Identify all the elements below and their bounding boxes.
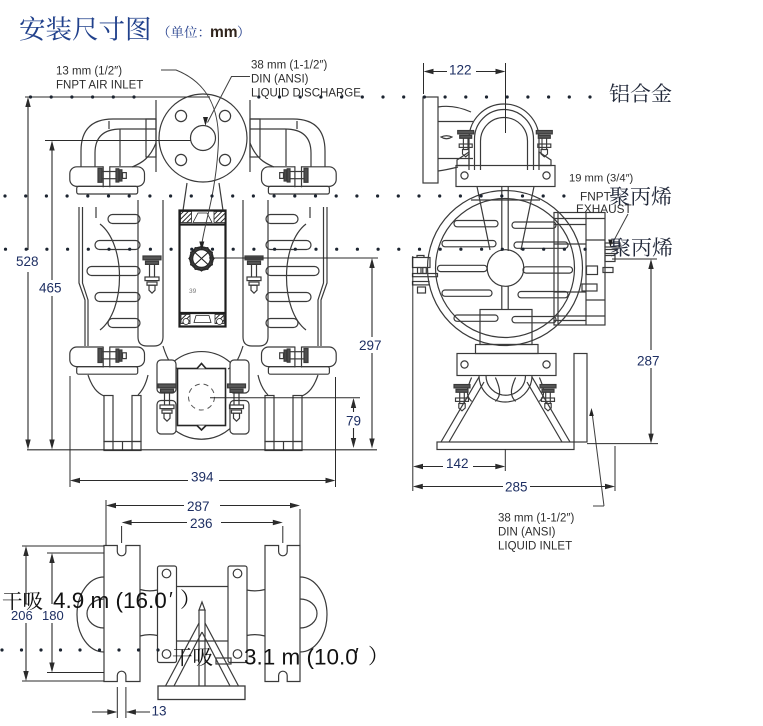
svg-text:3.1 m (10.0: 3.1 m (10.0 [244, 645, 358, 670]
svg-text:394: 394 [191, 470, 214, 485]
svg-text:285: 285 [505, 480, 528, 495]
svg-text:mm: mm [210, 24, 238, 41]
svg-text:287: 287 [637, 354, 660, 369]
svg-text:206: 206 [11, 608, 33, 623]
svg-text:287: 287 [187, 499, 210, 514]
svg-text:122: 122 [449, 63, 472, 78]
svg-text:38 mm (1-1/2″): 38 mm (1-1/2″) [498, 513, 574, 525]
svg-text:4.9 m (16.0: 4.9 m (16.0 [53, 588, 167, 613]
svg-text:297: 297 [359, 338, 382, 353]
svg-text:13: 13 [152, 704, 167, 719]
svg-text:FNPT AIR INLET: FNPT AIR INLET [56, 80, 143, 92]
svg-text:39: 39 [189, 288, 197, 295]
svg-text:DIN (ANSI): DIN (ANSI) [251, 74, 309, 86]
svg-text:465: 465 [39, 281, 62, 296]
svg-text:EXHAUST: EXHAUST [576, 202, 632, 216]
svg-text:′: ′ [355, 645, 359, 667]
svg-text:142: 142 [446, 456, 469, 471]
svg-text:DIN (ANSI): DIN (ANSI) [498, 527, 556, 539]
svg-text:38 mm (1-1/2″): 38 mm (1-1/2″) [251, 60, 327, 72]
svg-text:528: 528 [16, 254, 39, 269]
svg-text:79: 79 [346, 414, 361, 429]
svg-text:236: 236 [190, 516, 213, 531]
svg-text:′: ′ [169, 589, 173, 611]
svg-text:LIQUID INLET: LIQUID INLET [498, 541, 572, 553]
svg-text:19 mm (3/4″): 19 mm (3/4″) [569, 173, 634, 185]
svg-text:13 mm (1/2″): 13 mm (1/2″) [56, 66, 122, 78]
svg-text:LIQUID DISCHARGE: LIQUID DISCHARGE [251, 88, 361, 100]
